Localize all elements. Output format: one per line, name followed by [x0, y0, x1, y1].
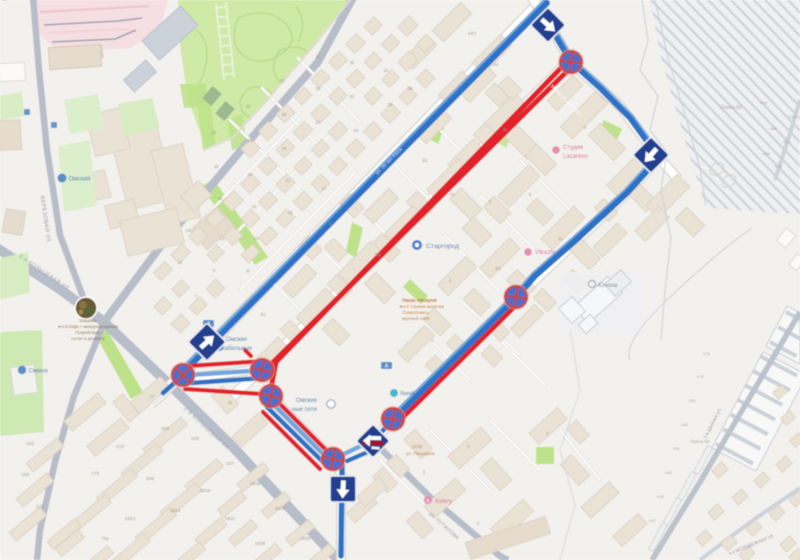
svg-text:3/1: 3/1 — [260, 312, 266, 317]
svg-text:15/18: 15/18 — [200, 488, 211, 493]
svg-text:28: 28 — [280, 78, 285, 83]
svg-text:32: 32 — [350, 60, 355, 65]
svg-text:10: 10 — [178, 260, 183, 265]
svg-text:15/14: 15/14 — [170, 508, 181, 513]
svg-text:17: 17 — [322, 186, 327, 191]
svg-text:15/2: 15/2 — [26, 441, 35, 446]
svg-text:29: 29 — [316, 86, 321, 91]
svg-text:13: 13 — [254, 236, 259, 241]
svg-text:Смена: Смена — [29, 368, 49, 375]
svg-text:15/28: 15/28 — [300, 536, 311, 541]
svg-text:0: 0 — [0, 0, 9, 4]
svg-text:‹197: ‹197 — [648, 519, 656, 523]
svg-text:17/3: 17/3 — [91, 471, 100, 476]
svg-text:15/9: 15/9 — [146, 476, 155, 481]
svg-text:11: 11 — [503, 127, 508, 132]
svg-text:15: 15 — [218, 196, 223, 201]
svg-text:21: 21 — [286, 178, 291, 183]
svg-text:ные сети: ные сети — [292, 407, 317, 413]
svg-text:26: 26 — [282, 112, 287, 117]
svg-text:Омский: Омский — [69, 176, 91, 183]
svg-text:Kelery: Kelery — [435, 499, 452, 505]
svg-text:31: 31 — [316, 54, 321, 59]
svg-text:‹179: ‹179 — [696, 375, 704, 379]
svg-text:Lazarevo: Lazarevo — [563, 154, 588, 160]
svg-text:20: 20 — [248, 172, 253, 177]
svg-text:34: 34 — [354, 128, 359, 133]
svg-text:‹191: ‹191 — [672, 447, 680, 451]
svg-text:30: 30 — [350, 94, 355, 99]
svg-text:Шаурма: Шаурма — [79, 318, 97, 323]
svg-text:16: 16 — [252, 204, 257, 209]
svg-text:Старгород: Старгород — [426, 243, 459, 250]
svg-text:33: 33 — [384, 68, 389, 73]
svg-text:22: 22 — [212, 130, 217, 135]
svg-text:19: 19 — [214, 164, 219, 169]
svg-text:‹183: ‹183 — [680, 423, 688, 427]
svg-text:75а: 75а — [102, 536, 110, 541]
svg-text:‹195: ‹195 — [656, 495, 664, 499]
svg-text:‹181: ‹181 — [688, 399, 696, 403]
svg-text:‹318: ‹318 — [759, 101, 767, 105]
svg-text:17/4: 17/4 — [36, 504, 45, 509]
svg-text:9/1: 9/1 — [422, 158, 428, 163]
svg-text:17/2: 17/2 — [116, 444, 125, 449]
svg-text:25: 25 — [246, 104, 251, 109]
svg-text:2239: 2239 — [412, 444, 423, 449]
svg-text:Яркий: Яркий — [400, 390, 414, 397]
svg-text:‹299: ‹299 — [762, 152, 770, 156]
svg-text:‹296: ‹296 — [774, 165, 782, 169]
svg-text:44/3: 44/3 — [468, 31, 477, 36]
svg-text:ул. Пиццерия: ул. Пиццерия — [406, 451, 435, 456]
svg-text:‹175: ‹175 — [702, 352, 710, 356]
svg-text:15/5: 15/5 — [191, 436, 200, 441]
svg-text:15/26: 15/26 — [255, 541, 266, 546]
svg-text:15/21: 15/21 — [225, 516, 236, 521]
svg-text:Омские: Омские — [296, 398, 318, 404]
svg-text:17: 17 — [150, 394, 155, 399]
svg-text:Vitrazhi: Vitrazhi — [535, 250, 555, 256]
svg-text:15/13: 15/13 — [125, 516, 136, 521]
svg-text:‹364: ‹364 — [769, 127, 777, 131]
svg-text:‹293: ‹293 — [788, 115, 796, 119]
svg-text:‹193: ‹193 — [664, 471, 672, 475]
svg-text:15/16: 15/16 — [250, 481, 261, 486]
svg-text:сытно и дешевле: сытно и дешевле — [71, 336, 105, 341]
svg-text:11: 11 — [246, 268, 251, 273]
svg-text:кабельные: кабельные — [222, 346, 253, 352]
svg-text:Студия: Студия — [563, 145, 583, 151]
svg-text:24: 24 — [282, 146, 287, 151]
svg-text:5/1: 5/1 — [375, 252, 381, 257]
svg-text:14: 14 — [186, 228, 191, 233]
svg-text:Онега-50: Онега-50 — [720, 105, 741, 111]
svg-text:11: 11 — [558, 236, 563, 241]
svg-text:Онега 50: Онега 50 — [690, 439, 710, 444]
svg-text:Попробовать: Попробовать — [402, 310, 429, 315]
svg-text:★4.6 Свежая выпечка: ★4.6 Свежая выпечка — [399, 304, 445, 309]
svg-text:7/1: 7/1 — [449, 192, 455, 197]
svg-text:27: 27 — [316, 120, 321, 125]
svg-text:15/3: 15/3 — [161, 426, 170, 431]
svg-text:Попробовать: Попробовать — [75, 330, 101, 335]
svg-text:Омские: Омские — [226, 337, 248, 343]
svg-text:вкусный хлеб: вкусный хлеб — [402, 316, 430, 321]
svg-text:38: 38 — [408, 86, 413, 91]
svg-text:15/7: 15/7 — [226, 461, 235, 466]
svg-text:18: 18 — [288, 210, 293, 215]
svg-text:‹324: ‹324 — [782, 140, 790, 144]
svg-text:Юнона: Юнона — [598, 283, 618, 289]
svg-text:2/1: 2/1 — [495, 266, 501, 271]
svg-text:15/8: 15/8 — [21, 472, 30, 477]
svg-text:12: 12 — [220, 236, 225, 241]
svg-text:15: 15 — [228, 400, 233, 405]
svg-text:15/24: 15/24 — [275, 506, 286, 511]
svg-text:23: 23 — [248, 138, 253, 143]
svg-text:36: 36 — [388, 102, 393, 107]
svg-text:★4.8 Кафе с международными: ★4.8 Кафе с международными — [58, 324, 119, 329]
svg-text:44: 44 — [494, 62, 499, 67]
